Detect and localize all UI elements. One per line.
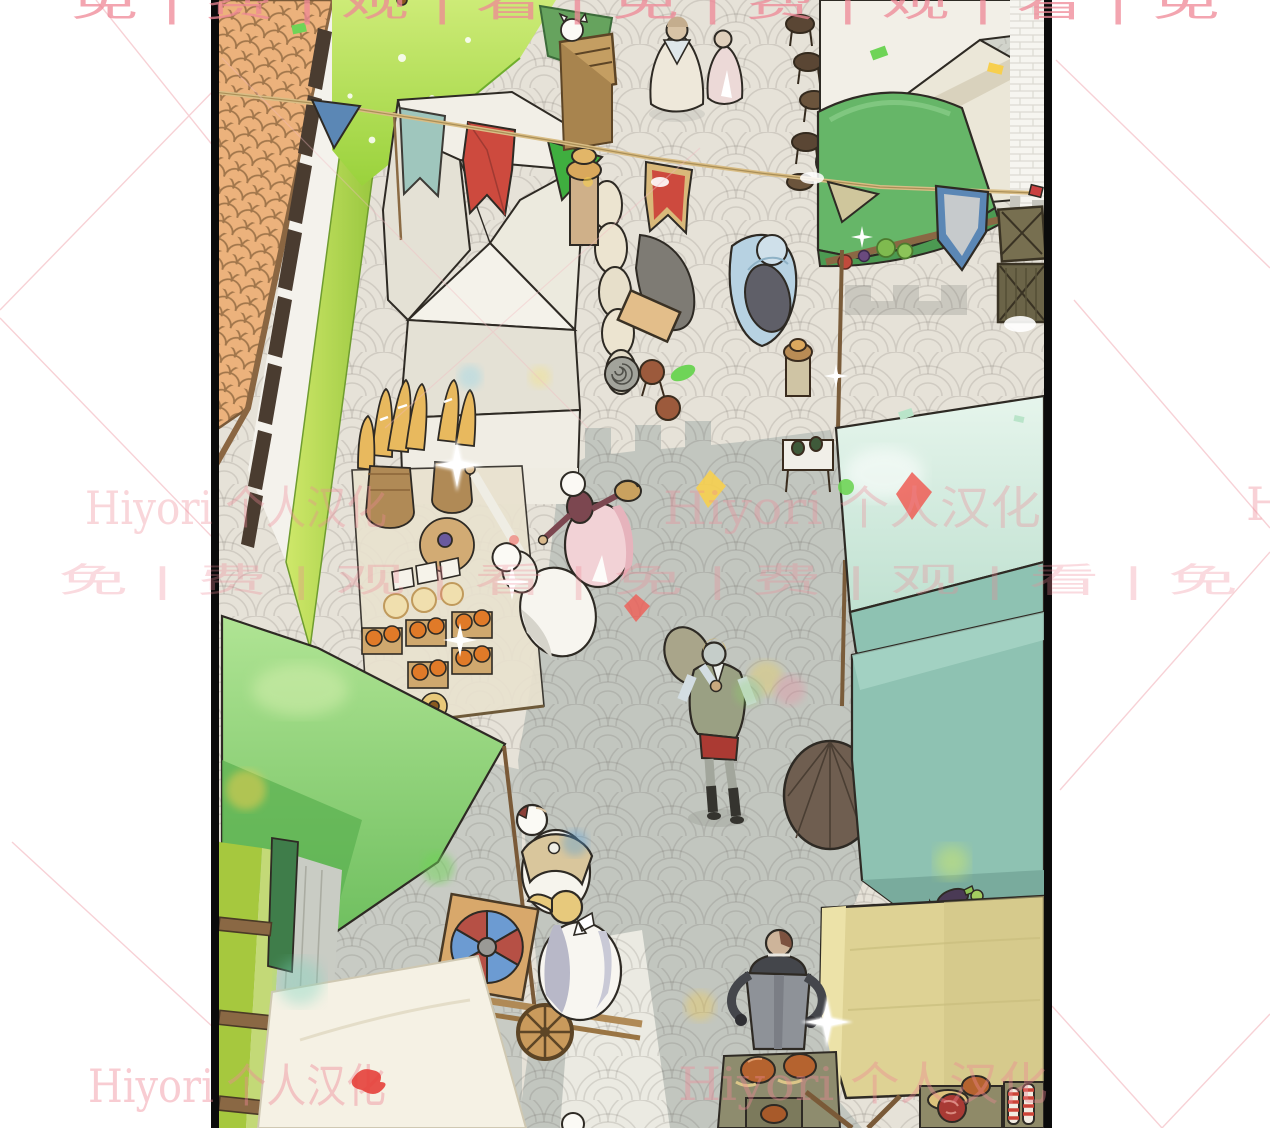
spiral-roll xyxy=(605,357,639,391)
watermark-free-middle: 免 | 费 | 观 | 看 | 免 | 费 | 观 | 看 | 免 xyxy=(58,561,1238,601)
mint-awning-lower xyxy=(852,612,1044,912)
watermark-free-top: 免 | 费 | 观 | 看 | 免 | 费 | 观 | 看 | 免 xyxy=(70,0,1220,25)
rope-tie xyxy=(1029,185,1043,198)
market-scene-illustration: 免 | 费 | 观 | 看 | 免 | 费 | 观 | 看 | 免 Hiyori… xyxy=(0,0,1270,1128)
bottom-head xyxy=(562,1113,584,1128)
watermark-brand-edge: Hi xyxy=(1246,477,1270,531)
bread-pedestal xyxy=(567,148,601,245)
crate-stack xyxy=(998,207,1046,322)
watermark-brand-bottom-right: Hiyori 个人汉化 xyxy=(678,1057,1048,1111)
watermark-brand-bottom-left: Hiyori 个人汉化 xyxy=(88,1059,386,1113)
watermark-brand-left: Hiyori 个人汉化 xyxy=(85,481,387,535)
webtoon-panel: 免 | 费 | 观 | 看 | 免 | 费 | 观 | 看 | 免 Hiyori… xyxy=(0,0,1270,1128)
watermark-brand-right: Hiyori 个人汉化 xyxy=(663,481,1041,535)
